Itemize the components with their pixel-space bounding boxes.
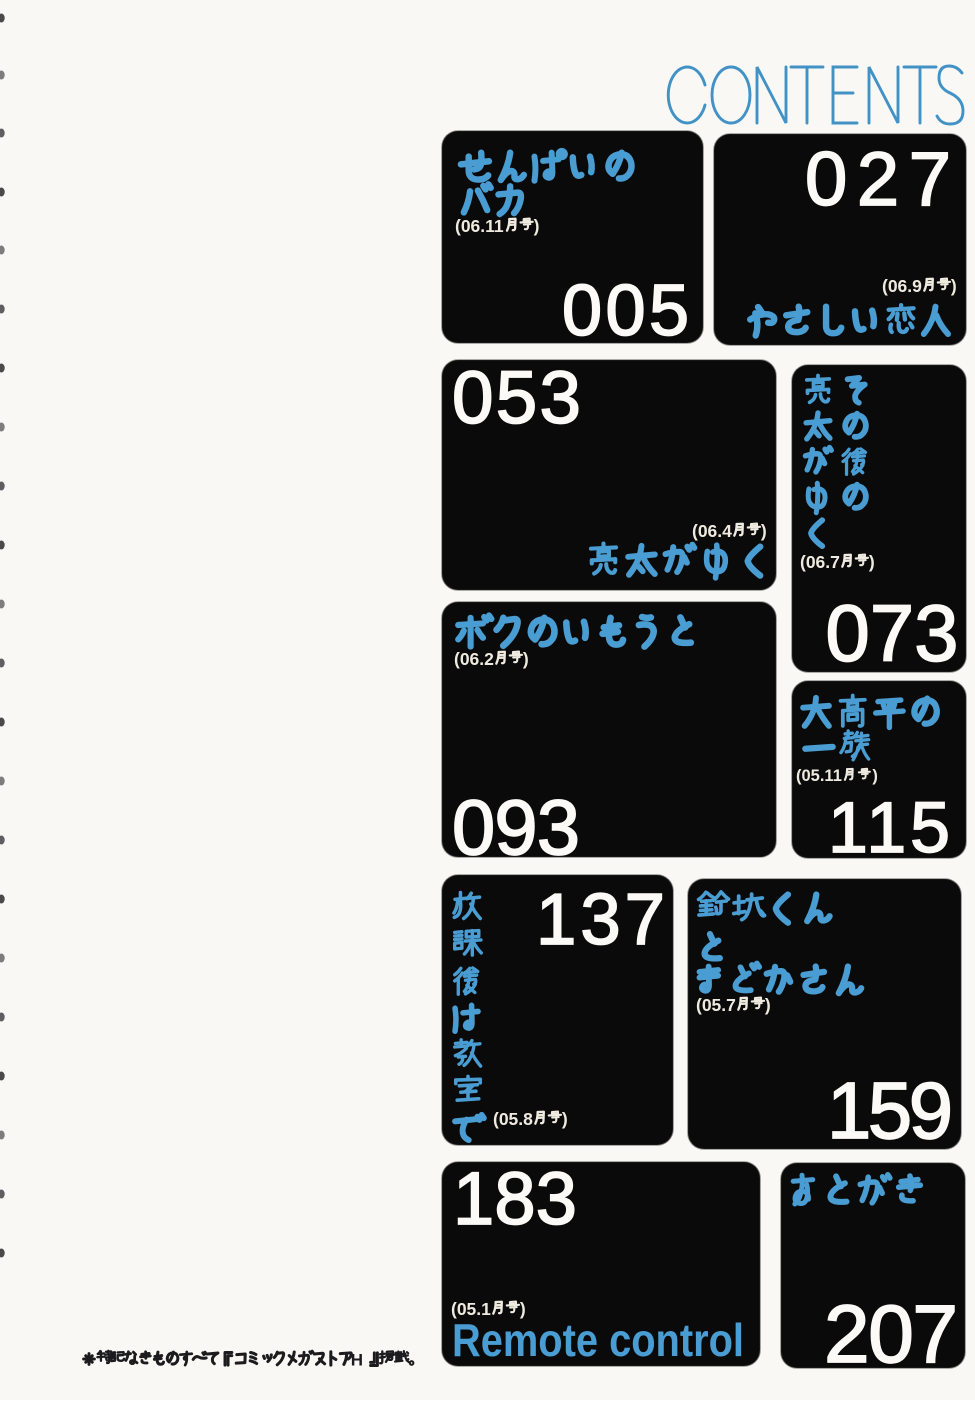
svg-text:(06.2: (06.2 xyxy=(454,649,494,669)
svg-text:): ) xyxy=(869,552,875,572)
svg-text:027: 027 xyxy=(805,137,951,222)
svg-text:207: 207 xyxy=(824,1289,958,1380)
svg-text:(06.7: (06.7 xyxy=(800,552,840,572)
svg-text:(05.11: (05.11 xyxy=(796,767,842,785)
svg-text:Remote control: Remote control xyxy=(452,1314,744,1366)
svg-text:(05.7: (05.7 xyxy=(696,995,736,1015)
svg-text:137: 137 xyxy=(536,879,665,960)
svg-text:053: 053 xyxy=(452,355,581,439)
svg-text:): ) xyxy=(523,649,529,669)
svg-text:): ) xyxy=(761,521,767,541)
svg-text:): ) xyxy=(765,995,771,1015)
svg-text:(05.8: (05.8 xyxy=(493,1109,533,1129)
svg-text:(06.4: (06.4 xyxy=(692,521,732,541)
svg-text:073: 073 xyxy=(826,589,959,678)
svg-text:(06.11: (06.11 xyxy=(455,216,504,236)
svg-text:(06.9: (06.9 xyxy=(882,276,922,296)
svg-text:183: 183 xyxy=(453,1157,577,1240)
svg-text:093: 093 xyxy=(452,785,580,871)
svg-text:H: H xyxy=(351,1351,363,1370)
svg-text:005: 005 xyxy=(562,271,689,351)
svg-text:): ) xyxy=(872,767,878,785)
svg-text:): ) xyxy=(562,1109,568,1129)
svg-text:115: 115 xyxy=(828,788,950,868)
svg-text:159: 159 xyxy=(827,1066,953,1155)
svg-text:): ) xyxy=(951,276,957,296)
svg-text:): ) xyxy=(534,216,540,236)
